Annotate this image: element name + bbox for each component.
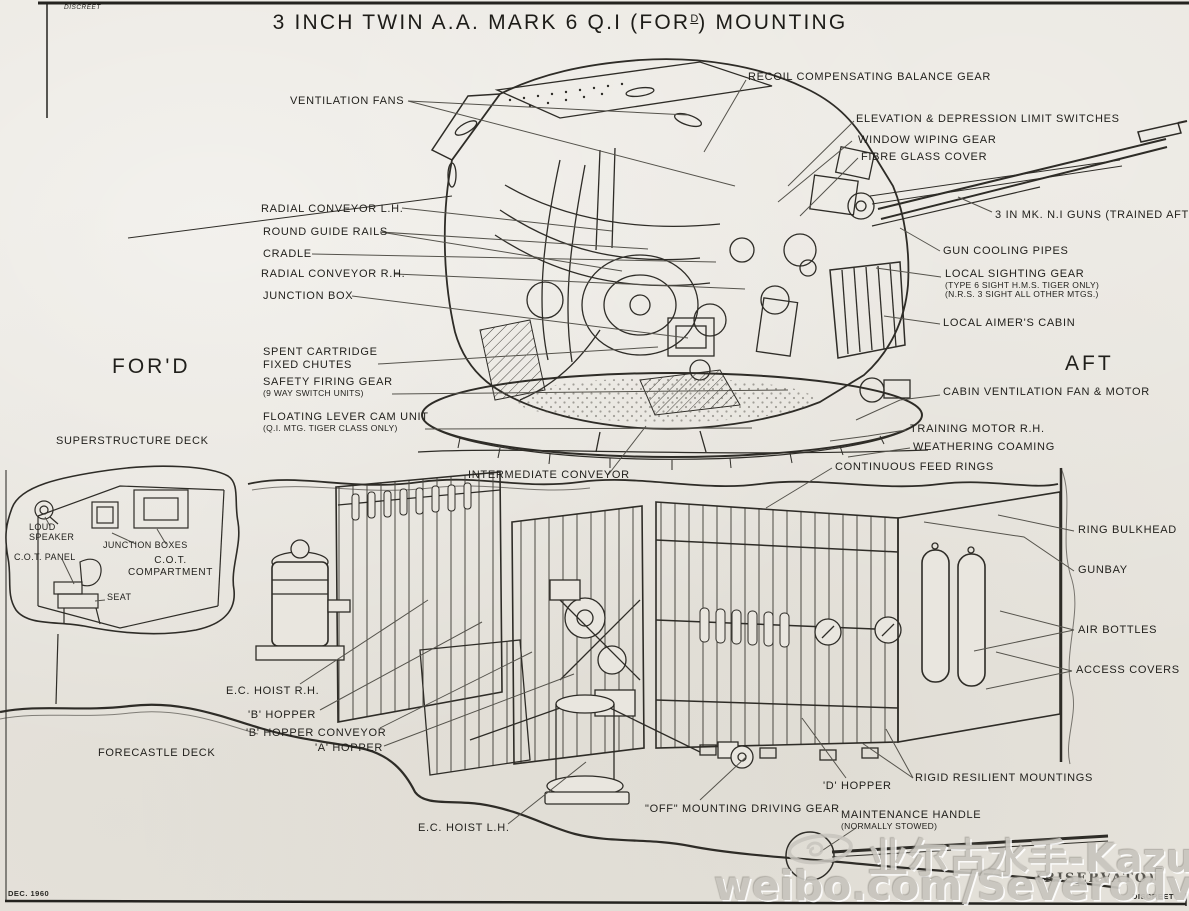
label-junction-box: JUNCTION BOX — [263, 290, 353, 303]
label-cradle: CRADLE — [263, 248, 312, 261]
label-line: (9 WAY SWITCH UNITS) — [263, 389, 393, 399]
label-line: C.O.T. — [128, 555, 213, 567]
label-line: (Q.I. MTG. TIGER CLASS ONLY) — [263, 424, 429, 434]
label-cot-compartment: C.O.T. COMPARTMENT — [128, 555, 213, 578]
label-d-hopper: 'D' HOPPER — [823, 780, 892, 793]
label-window-wiping-gear: WINDOW WIPING GEAR — [858, 134, 996, 147]
label-fibre-glass-cover: FIBRE GLASS COVER — [861, 151, 987, 164]
label-floating-lever-cam-unit: FLOATING LEVER CAM UNIT (Q.I. MTG. TIGER… — [263, 411, 429, 433]
label-line: SAFETY FIRING GEAR — [263, 376, 393, 389]
watermark-line2: weibo.com/Severodvinsk — [714, 862, 1189, 910]
label-a-hopper: 'A' HOPPER — [315, 742, 383, 755]
label-loud-speaker: LOUD SPEAKER — [29, 522, 74, 543]
label-radial-conveyor-rh: RADIAL CONVEYOR R.H. — [261, 268, 405, 281]
label-line: FLOATING LEVER CAM UNIT — [263, 411, 429, 424]
turret-drawing — [128, 59, 928, 470]
label-gun-cooling-pipes: GUN COOLING PIPES — [943, 245, 1069, 258]
label-line: FIXED CHUTES — [263, 359, 378, 372]
label-line: (N.R.S. 3 SIGHT ALL OTHER MTGS.) — [945, 290, 1099, 300]
label-guns: 3 IN MK. N.I GUNS (TRAINED AFT) — [995, 209, 1189, 222]
label-forecastle-deck: FORECASTLE DECK — [98, 747, 215, 760]
label-air-bottles: AIR BOTTLES — [1078, 624, 1157, 637]
label-radial-conveyor-lh: RADIAL CONVEYOR L.H. — [261, 203, 404, 216]
label-line: MAINTENANCE HANDLE — [841, 809, 981, 822]
label-local-aimers-cabin: LOCAL AIMER'S CABIN — [943, 317, 1075, 330]
label-line: SPEAKER — [29, 532, 74, 542]
label-off-mounting-driving-gear: "OFF" MOUNTING DRIVING GEAR — [645, 803, 840, 816]
label-safety-firing-gear: SAFETY FIRING GEAR (9 WAY SWITCH UNITS) — [263, 376, 393, 398]
label-round-guide-rails: ROUND GUIDE RAILS — [263, 226, 388, 239]
label-line: LOUD — [29, 522, 74, 532]
label-ring-bulkhead: RING BULKHEAD — [1078, 524, 1177, 537]
label-ec-hoist-rh: E.C. HOIST R.H. — [226, 685, 319, 698]
label-spent-cartridge-fixed-chutes: SPENT CARTRIDGE FIXED CHUTES — [263, 346, 378, 371]
label-seat: SEAT — [107, 592, 131, 602]
label-training-motor-rh: TRAINING MOTOR R.H. — [910, 423, 1045, 436]
label-superstructure-deck: SUPERSTRUCTURE DECK — [56, 435, 209, 448]
date-stamp: DEC. 1960 — [8, 889, 49, 898]
label-line: LOCAL SIGHTING GEAR — [945, 268, 1099, 281]
label-ec-hoist-lh: E.C. HOIST L.H. — [418, 822, 510, 835]
label-b-hopper-conveyor: 'B' HOPPER CONVEYOR — [246, 727, 386, 740]
label-intermediate-conveyor: INTERMEDIATE CONVEYOR — [468, 469, 630, 482]
label-weathering-coaming: WEATHERING COAMING — [913, 441, 1055, 454]
label-cot-panel: C.O.T. PANEL — [14, 552, 76, 562]
title-text: 3 INCH TWIN A.A. MARK 6 Q.I (FOR — [273, 11, 691, 34]
label-local-sighting-gear: LOCAL SIGHTING GEAR (TYPE 6 SIGHT H.M.S.… — [945, 268, 1099, 300]
label-b-hopper: 'B' HOPPER — [248, 709, 316, 722]
classification-mark-top: DISCREET — [64, 4, 101, 11]
label-cabin-ventilation-fan-motor: CABIN VENTILATION FAN & MOTOR — [943, 386, 1150, 399]
label-aft-direction: AFT — [1065, 352, 1114, 376]
label-elevation-depression-limit-switches: ELEVATION & DEPRESSION LIMIT SWITCHES — [856, 113, 1120, 126]
label-fore-direction: FOR'D — [112, 355, 191, 379]
label-line: COMPARTMENT — [128, 567, 213, 579]
label-junction-boxes: JUNCTION BOXES — [103, 540, 188, 550]
label-recoil-compensating-balance-gear: RECOIL COMPENSATING BALANCE GEAR — [748, 71, 991, 84]
label-access-covers: ACCESS COVERS — [1076, 664, 1180, 677]
label-gunbay: GUNBAY — [1078, 564, 1128, 577]
label-ventilation-fans: VENTILATION FANS — [290, 95, 404, 108]
label-continuous-feed-rings: CONTINUOUS FEED RINGS — [835, 461, 994, 474]
cot-inset-drawing — [6, 466, 239, 704]
diagram-title: 3 INCH TWIN A.A. MARK 6 Q.I (FORD) MOUNT… — [240, 11, 880, 35]
label-rigid-resilient-mountings: RIGID RESILIENT MOUNTINGS — [915, 772, 1093, 785]
label-line: SPENT CARTRIDGE — [263, 346, 378, 359]
scanned-diagram-page: 3 INCH TWIN A.A. MARK 6 Q.I (FORD) MOUNT… — [0, 0, 1189, 911]
title-text-end: ) MOUNTING — [698, 11, 847, 34]
